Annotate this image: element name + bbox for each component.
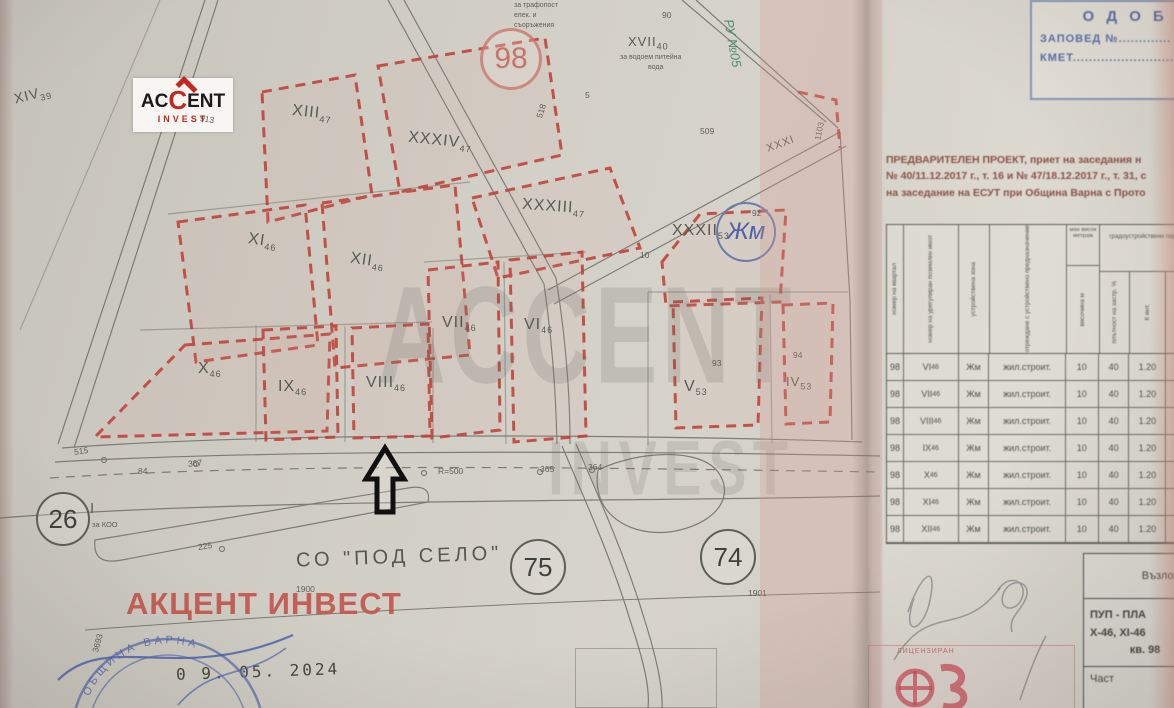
ann-515: 515 [73,445,88,457]
plot-label-IV: IV53 [786,374,812,392]
note-xvii-line2: вода [648,64,663,71]
faint-box [575,648,717,708]
quarter-98-label: 98 [494,42,527,76]
ann-84: 84 [138,466,147,476]
north-arrow-icon [350,438,430,518]
ann-10: 10 [640,250,649,260]
note-top-line2: елек. и [514,12,537,19]
logo-text-ent: ENT [187,91,225,112]
cadastral-map-photo: ACCENT INVEST ACCENT INVEST 98 26 I за К… [0,0,1174,708]
ann-1901: 1901 [748,588,767,598]
note-26-roman: I [90,500,94,517]
area-75-circle: 75 [510,539,566,595]
note-26-koo: за КОО [92,520,118,529]
accent-invest-logo: ACCENT INVEST [133,78,233,132]
ann-5: 5 [585,90,590,100]
zone-badge-zhm: Жм [716,202,776,262]
plot-label-VIII: VIII46 [366,374,406,393]
logo-text-invest: INVEST [133,114,233,124]
municipal-round-stamp: ОБЩИНА ВАРНА [28,610,308,708]
plot-label-XVII: XVII40 [628,34,669,52]
pencil-marks [880,0,1174,708]
ann-365: 365 [540,464,554,474]
note-top-line3: съоръжения [514,22,554,29]
plot-label-X: X46 [198,360,222,379]
note-xvii-line1: за водоем питейна [620,54,681,61]
map-sheet: ACCENT INVEST ACCENT INVEST 98 26 I за К… [0,0,880,708]
plot-label-XI: XI46 [247,230,279,253]
ann-913: 913 [199,113,215,125]
zone-badge-label: Жм [727,218,765,246]
ann-367: 367 [188,457,203,468]
ann-225: 225 [197,540,212,552]
ann-364: 364 [588,462,602,472]
ann-r500: R=500 [438,466,463,476]
ann-90: 90 [662,10,671,20]
area-74-circle: 74 [700,529,756,585]
ann-94: 94 [793,350,802,360]
right-sheet: О Д О Б Р ЗАПОВЕД №............. КМЕТ...… [880,0,1174,708]
area-26-circle: 26 [36,492,90,546]
plot-label-IX: IX46 [278,378,307,397]
plot-label-XIII: XIII47 [291,102,333,125]
svg-text:ОБЩИНА ВАРНА: ОБЩИНА ВАРНА [81,634,201,698]
ann-93: 93 [712,358,721,368]
note-top-line1: за трафопост [514,2,558,9]
plot-label-V: V53 [684,378,708,397]
plot-label-VI: VI46 [524,316,553,335]
logo-text-ac: AC [141,91,168,112]
stamp-text: ОБЩИНА ВАРНА [81,634,201,698]
quarter-98-circle: 98 [480,28,542,90]
area-75-label: 75 [524,552,553,583]
plot-label-VII: VII46 [442,314,477,333]
area-26-label: 26 [49,504,78,535]
ann-509: 509 [700,126,714,136]
area-74-label: 74 [714,542,743,573]
